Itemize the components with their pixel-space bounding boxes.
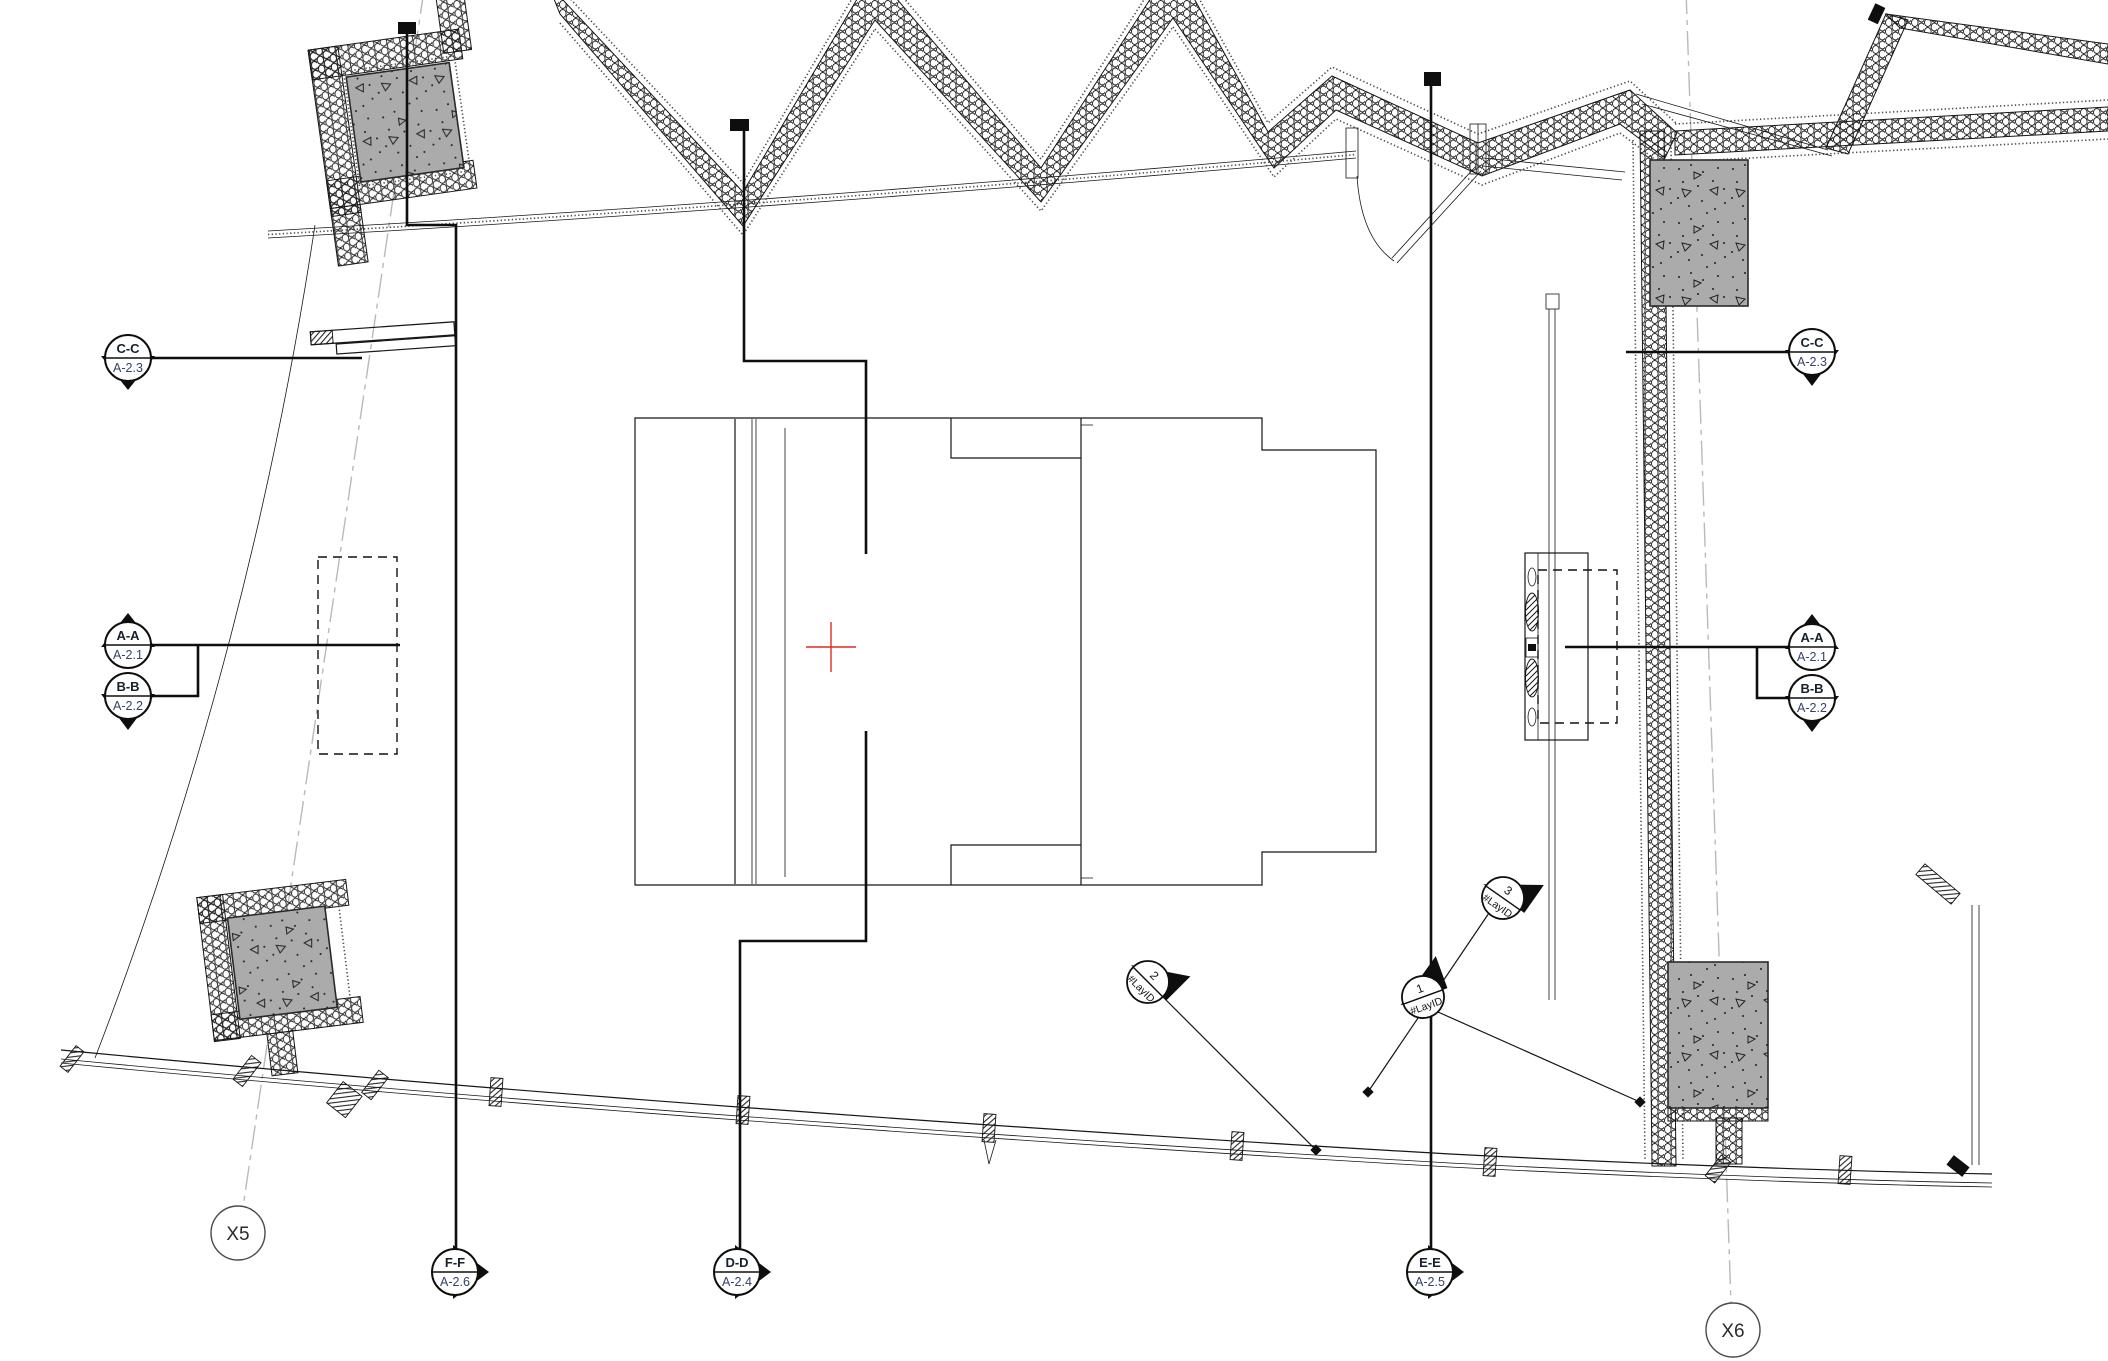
- section-line-ff: [398, 22, 456, 1249]
- section-line-bb-right: [1757, 647, 1789, 698]
- section-line-dd: [730, 119, 866, 1249]
- svg-text:A-2.6: A-2.6: [440, 1275, 470, 1289]
- svg-text:A-2.4: A-2.4: [722, 1275, 752, 1289]
- detail-callout-1[interactable]: 1 #LayID: [1389, 956, 1646, 1107]
- svg-text:A-2.2: A-2.2: [113, 699, 143, 713]
- svg-text:B-B: B-B: [116, 679, 139, 694]
- hinge-bottom: [1526, 659, 1539, 697]
- section-marker-aa-left[interactable]: A-A A-2.1: [101, 613, 155, 668]
- svg-text:E-E: E-E: [1419, 1255, 1441, 1270]
- svg-text:A-A: A-A: [116, 628, 140, 643]
- insulated-wall-zigzag: [548, 0, 1677, 235]
- section-marker-ff[interactable]: F-F A-2.6: [432, 1245, 489, 1299]
- svg-text:D-D: D-D: [725, 1255, 748, 1270]
- detail-callout-2[interactable]: 2 #LayID: [1116, 941, 1321, 1156]
- section-marker-cc-left[interactable]: C-C A-2.3: [101, 335, 155, 390]
- svg-text:A-2.2: A-2.2: [1797, 701, 1827, 715]
- grid-bubble-x6[interactable]: X6: [1706, 1303, 1760, 1357]
- origin-crosshair: [806, 622, 856, 672]
- svg-text:A-2.3: A-2.3: [1797, 355, 1827, 369]
- svg-text:C-C: C-C: [1800, 335, 1824, 350]
- hinge-top: [1526, 593, 1539, 631]
- section-marker-cc-right[interactable]: C-C A-2.3: [1785, 329, 1839, 386]
- dashed-zone-left: [318, 557, 397, 754]
- svg-text:F-F: F-F: [445, 1255, 465, 1270]
- wall-assembly-bottom-left: [197, 879, 369, 1082]
- concrete-column-bottom-left: [228, 906, 338, 1019]
- floor-plan-page: 3 #LayID 1 #LayID 2 #LayID: [0, 0, 2108, 1361]
- door-swing-arc: [1357, 176, 1394, 261]
- section-marker-ee[interactable]: E-E A-2.5: [1407, 1245, 1464, 1299]
- wall-stub-hatch: [327, 1082, 363, 1118]
- svg-text:B-B: B-B: [1800, 681, 1823, 696]
- section-marker-dd[interactable]: D-D A-2.4: [714, 1245, 771, 1299]
- svg-text:A-2.1: A-2.1: [113, 648, 143, 662]
- insulated-wall-top-right: [1636, 3, 2108, 162]
- grid-bubble-x5[interactable]: X5: [211, 1206, 265, 1260]
- section-marker-bb-left[interactable]: B-B A-2.2: [101, 673, 155, 730]
- svg-text:A-A: A-A: [1800, 630, 1824, 645]
- svg-text:X5: X5: [226, 1224, 249, 1245]
- jamb-assembly-bottom-right: [1916, 864, 1979, 1177]
- concrete-column-top-left: [346, 63, 464, 182]
- detail-callout-3[interactable]: 3 #LayID: [1362, 856, 1543, 1097]
- svg-text:A-2.3: A-2.3: [113, 361, 143, 375]
- concrete-column-bottom-right: [1668, 962, 1768, 1164]
- stage-outline: [635, 418, 1376, 885]
- mullion-track: [1546, 294, 1559, 1000]
- section-line-bb-left: [151, 645, 198, 696]
- door-leaf: [1392, 166, 1481, 263]
- section-marker-bb-right[interactable]: B-B A-2.2: [1785, 675, 1839, 732]
- svg-text:A-2.5: A-2.5: [1415, 1275, 1445, 1289]
- svg-text:X6: X6: [1721, 1321, 1744, 1342]
- section-marker-aa-right[interactable]: A-A A-2.1: [1785, 614, 1839, 670]
- ledge-top-left: [310, 322, 455, 356]
- concrete-column-top-right: [1650, 160, 1748, 306]
- section-line-ee: [1424, 72, 1441, 1249]
- svg-text:C-C: C-C: [116, 341, 140, 356]
- floor-plan-drawing: 3 #LayID 1 #LayID 2 #LayID: [0, 0, 2108, 1361]
- svg-text:A-2.1: A-2.1: [1797, 650, 1827, 664]
